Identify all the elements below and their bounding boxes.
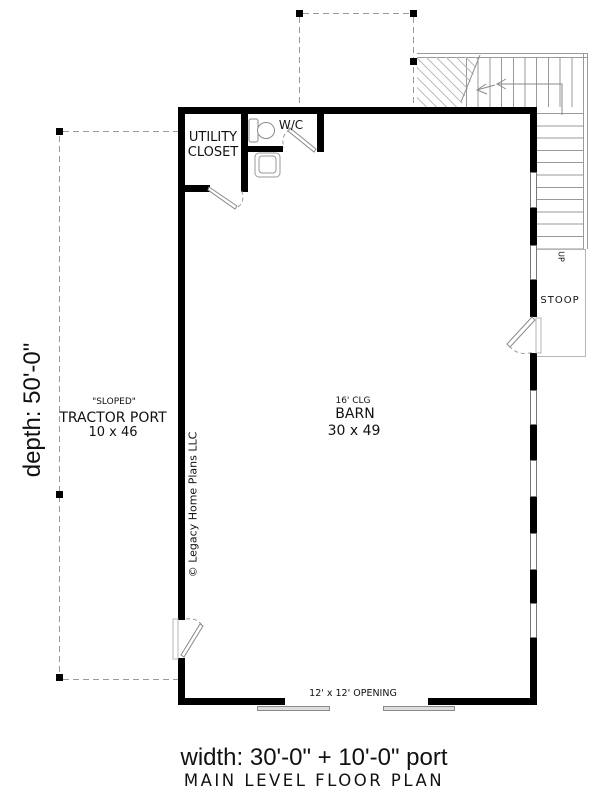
stair-up-label: UP: [557, 247, 566, 267]
tractor-port-name-label: TRACTOR PORT: [48, 410, 178, 426]
copyright-text: © Legacy Home Plans LLC: [187, 420, 200, 590]
stair-arrow-tail: [477, 85, 495, 90]
utility-closet-label: UTILITY CLOSET: [178, 130, 248, 160]
stoop-label: STOOP: [535, 295, 585, 306]
stair-up-arrow: [497, 84, 562, 115]
depth-dimension: depth: 50'-0": [19, 335, 47, 485]
sink-icon: [255, 153, 280, 177]
width-dimension: width: 30'-0" + 10'-0" port: [114, 744, 514, 772]
opening-annotation: 12' x 12' OPENING: [283, 688, 423, 699]
wc-label: W/C: [271, 118, 311, 132]
tractor-port-note-label: "SLOPED": [74, 397, 154, 407]
stair-break-line: [461, 55, 480, 102]
barn-ceiling-label: 16' CLG: [313, 396, 393, 406]
door-utility-closet: [208, 187, 243, 209]
floor-plan: UTILITY CLOSET W/C 16' CLG BARN 30 x 49 …: [0, 0, 600, 801]
barn-name-label: BARN: [315, 406, 395, 422]
door-left-wall: [173, 619, 203, 659]
utility-closet-label-line1: UTILITY: [178, 130, 248, 145]
tractor-port-size-label: 10 x 46: [73, 425, 153, 440]
plan-title: MAIN LEVEL FLOOR PLAN: [114, 771, 514, 790]
barn-size-label: 30 x 49: [314, 423, 394, 439]
door-stoop: [507, 317, 541, 354]
utility-closet-label-line2: CLOSET: [178, 145, 248, 160]
